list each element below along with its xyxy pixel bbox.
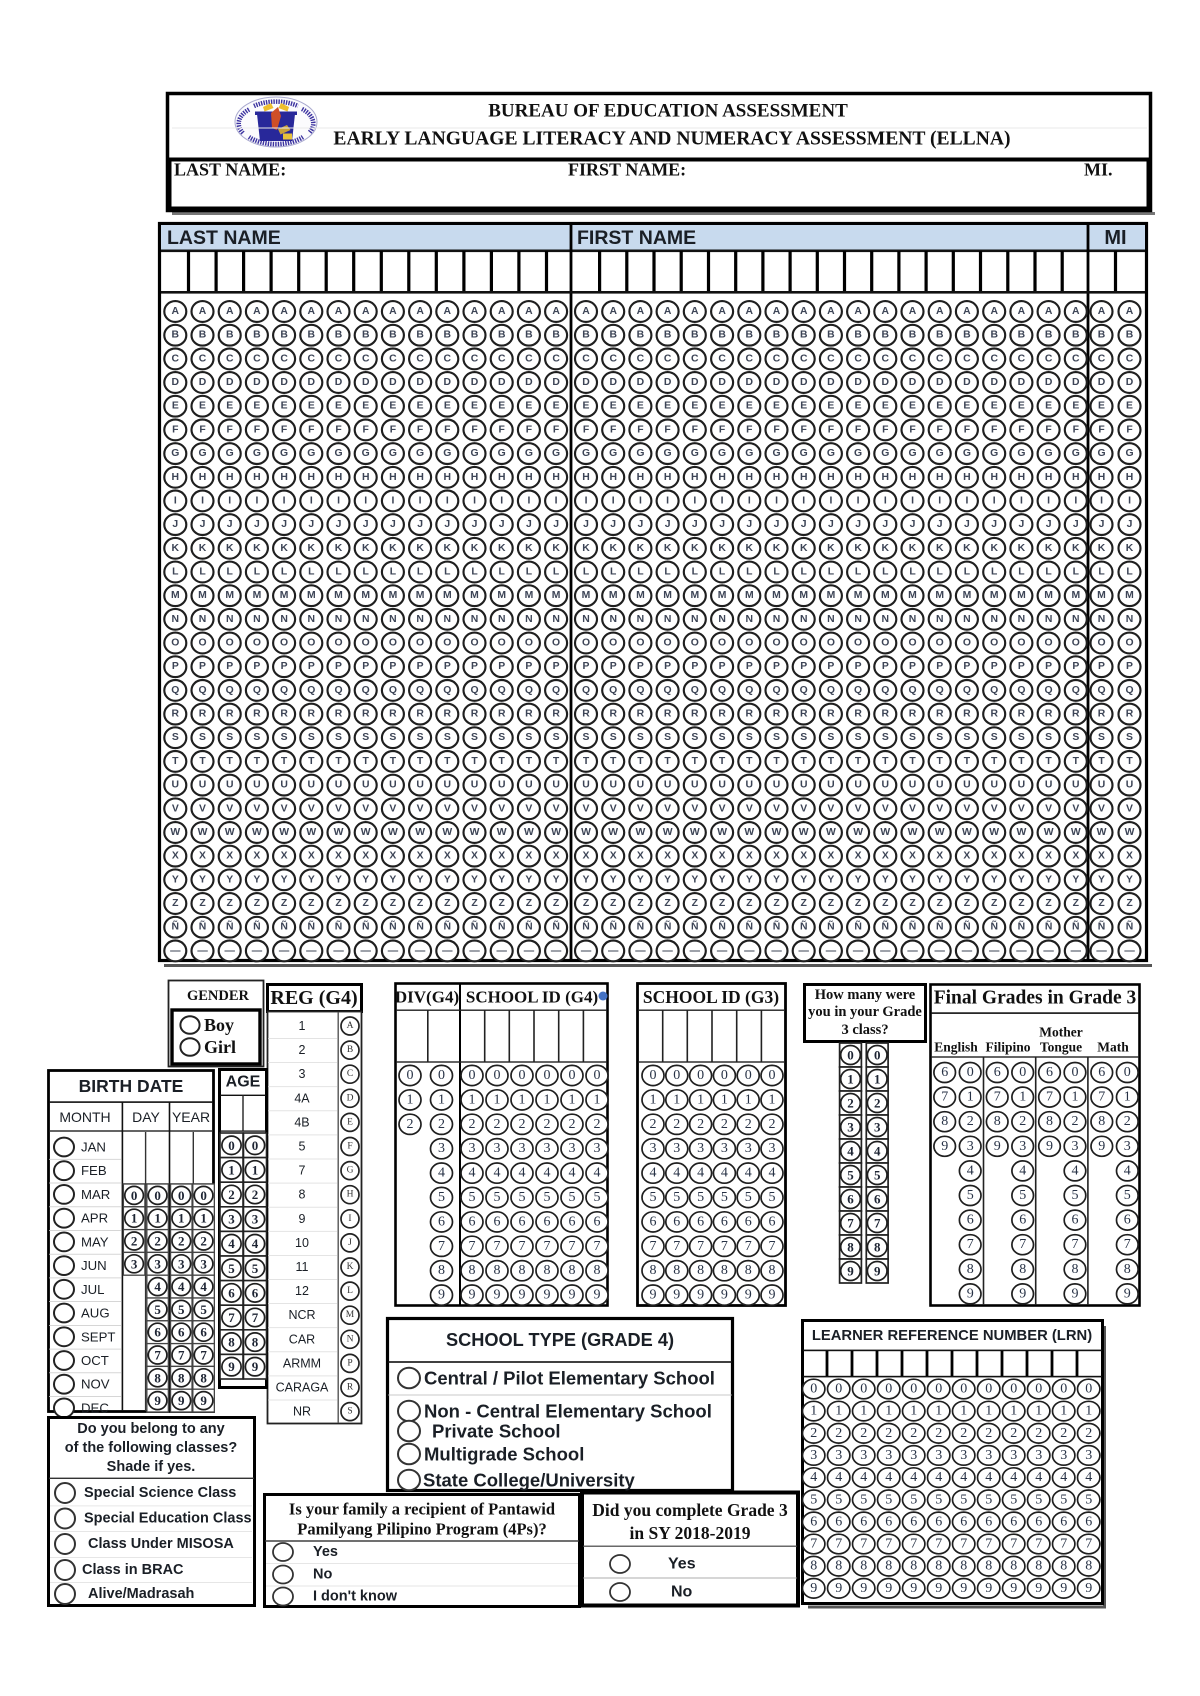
svg-text:Private School: Private School: [432, 1421, 561, 1442]
svg-text:9: 9: [299, 1212, 306, 1226]
svg-text:State College/University: State College/University: [423, 1470, 636, 1491]
svg-text:J: J: [348, 1238, 352, 1248]
svg-text:3: 3: [299, 1067, 306, 1081]
svg-text:GENDER: GENDER: [187, 988, 250, 1004]
svg-text:JUL: JUL: [81, 1282, 104, 1297]
svg-text:CARAGA: CARAGA: [276, 1381, 329, 1395]
svg-text:MI: MI: [1104, 227, 1126, 249]
svg-text:E: E: [347, 1117, 353, 1127]
svg-text:B: B: [347, 1045, 353, 1055]
svg-text:CAR: CAR: [289, 1332, 315, 1346]
svg-text:7: 7: [299, 1164, 306, 1178]
svg-text:Shade if yes.: Shade if yes.: [107, 1459, 196, 1475]
svg-text:H: H: [347, 1190, 354, 1200]
svg-text:10: 10: [295, 1236, 309, 1250]
svg-text:R: R: [347, 1383, 354, 1393]
svg-text:in SY 2018-2019: in SY 2018-2019: [630, 1523, 751, 1543]
svg-text:4A: 4A: [294, 1091, 310, 1105]
svg-text:No: No: [671, 1584, 693, 1601]
svg-text:Did you complete Grade 3: Did you complete Grade 3: [592, 1500, 788, 1520]
svg-text:Do you belong to any: Do you belong to any: [77, 1421, 224, 1437]
svg-text:MAY: MAY: [81, 1234, 109, 1249]
svg-text:SCHOOL ID (G3): SCHOOL ID (G3): [643, 987, 779, 1007]
svg-text:MONTH: MONTH: [59, 1109, 110, 1125]
svg-text:3: 3: [131, 1256, 138, 1271]
svg-text:Final Grades in Grade 3: Final Grades in Grade 3: [934, 988, 1137, 1009]
svg-text:LAST NAME:: LAST NAME:: [174, 160, 286, 180]
svg-text:you in your Grade: you in your Grade: [808, 1004, 922, 1020]
svg-text:Non - Central Elementary Schoo: Non - Central Elementary School: [424, 1401, 712, 1422]
svg-text:0: 0: [131, 1188, 138, 1203]
svg-text:A: A: [347, 1021, 354, 1031]
svg-text:AGE: AGE: [226, 1074, 261, 1091]
svg-text:APR: APR: [81, 1211, 108, 1226]
svg-text:JAN: JAN: [81, 1140, 106, 1155]
svg-text:0: 0: [407, 1068, 414, 1083]
svg-text:1: 1: [131, 1211, 138, 1226]
svg-text:12: 12: [295, 1284, 309, 1298]
svg-text:1: 1: [407, 1092, 414, 1107]
svg-text:of the following classes?: of the following classes?: [65, 1440, 238, 1456]
svg-text:D: D: [347, 1093, 354, 1103]
svg-text:3 class?: 3 class?: [841, 1022, 888, 1038]
svg-text:DEC: DEC: [81, 1400, 109, 1415]
svg-text:Class Under MISOSA: Class Under MISOSA: [88, 1536, 234, 1552]
svg-text:K: K: [347, 1262, 354, 1272]
svg-text:YEAR: YEAR: [172, 1109, 210, 1125]
svg-text:2: 2: [131, 1234, 138, 1249]
svg-text:FIRST NAME: FIRST NAME: [577, 227, 696, 249]
svg-text:JUN: JUN: [81, 1258, 107, 1273]
svg-text:Central / Pilot Elementary Sch: Central / Pilot Elementary School: [424, 1368, 715, 1389]
svg-text:NR: NR: [293, 1405, 311, 1419]
svg-text:Multigrade School: Multigrade School: [424, 1444, 584, 1465]
svg-text:Tongue: Tongue: [1040, 1040, 1082, 1055]
svg-text:5: 5: [299, 1140, 306, 1154]
svg-text:2: 2: [407, 1117, 414, 1132]
svg-text:AUG: AUG: [81, 1306, 110, 1321]
svg-text:M: M: [346, 1310, 355, 1320]
svg-text:How many were: How many were: [815, 987, 916, 1003]
svg-text:MAR: MAR: [81, 1187, 110, 1202]
svg-text:BIRTH DATE: BIRTH DATE: [79, 1076, 184, 1096]
svg-text:MI.: MI.: [1084, 160, 1113, 180]
svg-text:DAY: DAY: [132, 1109, 160, 1125]
svg-text:8: 8: [299, 1188, 306, 1202]
svg-text:Filipino: Filipino: [985, 1040, 1030, 1055]
svg-text:Special Education Class: Special Education Class: [84, 1511, 252, 1527]
svg-text:Is your family a recipient of: Is your family a recipient of Pantawid: [289, 1500, 555, 1519]
svg-text:NOV: NOV: [81, 1377, 110, 1392]
svg-text:Math: Math: [1097, 1040, 1129, 1055]
svg-text:LEARNER REFERENCE NUMBER (LRN): LEARNER REFERENCE NUMBER (LRN): [812, 1328, 1092, 1344]
svg-text:FIRST NAME:: FIRST NAME:: [568, 160, 686, 180]
svg-text:G: G: [347, 1166, 354, 1176]
svg-text:English: English: [934, 1040, 978, 1055]
svg-text:F: F: [347, 1142, 352, 1152]
svg-text:DIV(G4): DIV(G4): [395, 988, 459, 1007]
svg-text:I: I: [348, 1214, 351, 1224]
svg-text:Girl: Girl: [204, 1037, 236, 1057]
svg-text:NCR: NCR: [288, 1308, 315, 1322]
svg-text:Yes: Yes: [313, 1544, 338, 1560]
svg-text:FEB: FEB: [81, 1163, 107, 1178]
svg-text:S: S: [347, 1407, 352, 1417]
svg-text:2: 2: [299, 1043, 306, 1057]
svg-text:Yes: Yes: [668, 1556, 696, 1573]
svg-text:11: 11: [296, 1260, 309, 1274]
svg-text:ARMM: ARMM: [283, 1356, 321, 1370]
svg-text:LAST NAME: LAST NAME: [167, 227, 281, 249]
svg-text:N: N: [347, 1334, 354, 1344]
svg-text:Pamilyang Pilipino Program (4P: Pamilyang Pilipino Program (4Ps)?: [297, 1520, 546, 1539]
svg-text:BUREAU OF EDUCATION ASSESSMENT: BUREAU OF EDUCATION ASSESSMENT: [488, 101, 848, 122]
svg-text:Mother: Mother: [1039, 1025, 1082, 1040]
svg-text:P: P: [347, 1358, 352, 1368]
svg-text:SCHOOL TYPE (GRADE 4): SCHOOL TYPE (GRADE 4): [446, 1330, 674, 1350]
svg-text:1: 1: [299, 1019, 306, 1033]
svg-text:I don't know: I don't know: [313, 1589, 398, 1605]
svg-text:L: L: [347, 1286, 353, 1296]
svg-text:OCT: OCT: [81, 1353, 109, 1368]
svg-text:Class in BRAC: Class in BRAC: [82, 1562, 184, 1578]
svg-text:EARLY LANGUAGE LITERACY AND NU: EARLY LANGUAGE LITERACY AND NUMERACY ASS…: [333, 129, 1010, 150]
svg-text:Boy: Boy: [204, 1015, 234, 1035]
svg-text:Alive/Madrasah: Alive/Madrasah: [88, 1586, 194, 1602]
svg-text:4B: 4B: [294, 1115, 309, 1129]
svg-text:No: No: [313, 1567, 332, 1583]
svg-text:C: C: [347, 1069, 353, 1079]
svg-text:REG (G4): REG (G4): [270, 987, 357, 1009]
svg-text:SCHOOL ID (G4): SCHOOL ID (G4): [466, 988, 598, 1007]
svg-text:Special Science Class: Special Science Class: [84, 1485, 236, 1501]
svg-text:SEPT: SEPT: [81, 1329, 115, 1344]
